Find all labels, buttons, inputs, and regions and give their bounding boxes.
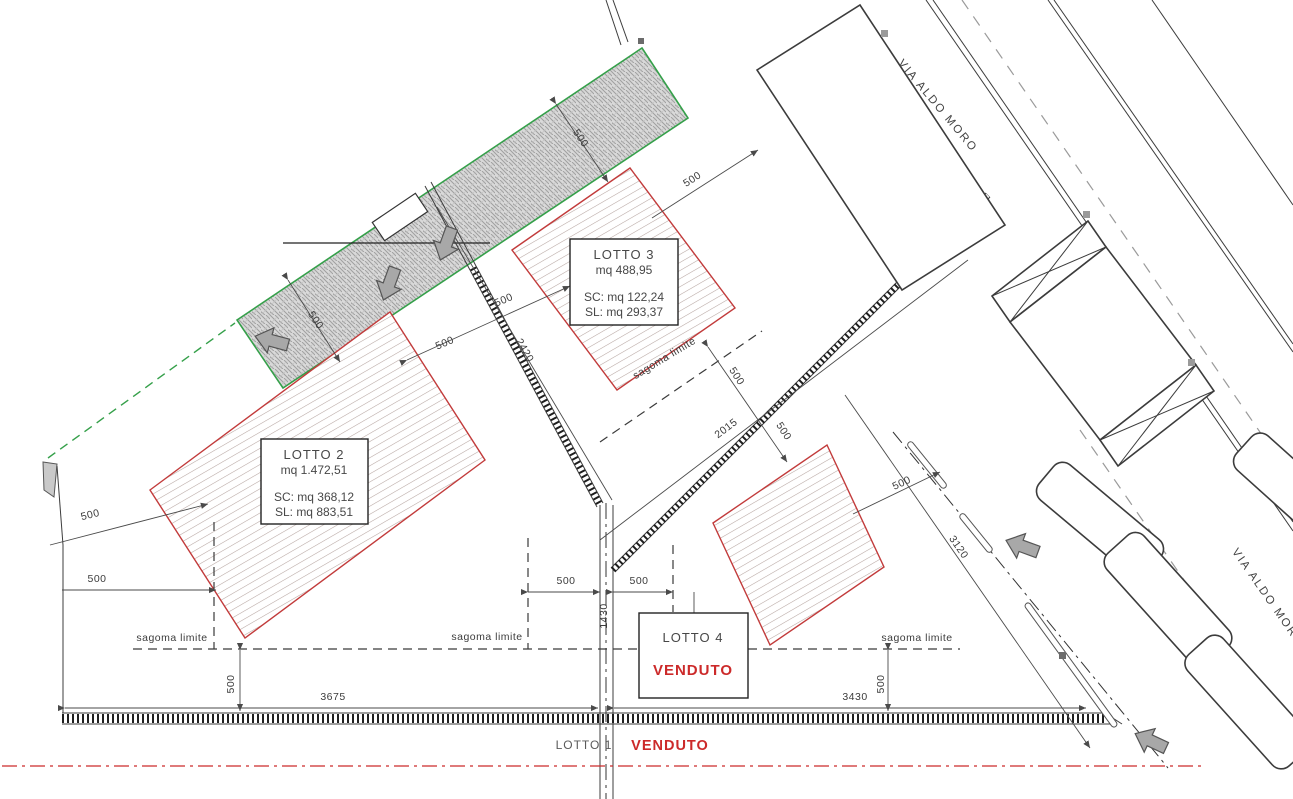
dim-label: 500 (225, 674, 237, 693)
lot4-status-sold: VENDUTO (653, 662, 733, 679)
street-name-secondary: VIA ALDO MOR (1229, 546, 1293, 640)
lot3-title: LOTTO 3 (594, 247, 655, 262)
lane-centerline (893, 432, 1168, 768)
dim-label: 500 (80, 507, 101, 523)
road-marking-bar (906, 441, 947, 490)
dim-label: 500 (875, 674, 887, 693)
label-box-lotto3: LOTTO 3 mq 488,95 SC: mq 122,24 SL: mq 2… (570, 239, 678, 325)
sagoma-limite-label: sagoma limite (136, 632, 207, 644)
dim-label: 500 (434, 334, 456, 352)
dim-label: 500 (726, 365, 746, 387)
lot3-area-label: mq 488,95 (596, 263, 653, 277)
dim-label: 500 (629, 575, 648, 587)
survey-point (1059, 652, 1066, 659)
dim-label: 500 (556, 575, 575, 587)
survey-point (881, 30, 888, 37)
lot4-title: LOTTO 4 (663, 630, 724, 645)
sagoma-limite-label: sagoma limite (451, 631, 522, 643)
lot2-sl-label: SL: mq 883,51 (275, 505, 353, 519)
road-marking-bar (1024, 602, 1118, 728)
direction-arrow-icon (1002, 528, 1043, 564)
boundary-triangle (43, 462, 57, 497)
via-aldo-moro (757, 0, 1293, 774)
dim-label: 500 (87, 573, 106, 585)
survey-point (638, 38, 644, 44)
direction-arrow-icon (1130, 722, 1172, 760)
survey-point (1083, 211, 1090, 218)
dim-label: 2015 (712, 416, 739, 441)
north-access-line (613, 0, 628, 42)
green-dashed-boundary (48, 323, 235, 458)
lots-hatched (150, 168, 884, 645)
survey-point (1188, 359, 1195, 366)
fence-line (1152, 0, 1293, 205)
lot1-labels: LOTTO 1 VENDUTO (556, 738, 709, 754)
label-box-lotto2: LOTTO 2 mq 1.472,51 SC: mq 368,12 SL: mq… (261, 439, 368, 524)
dim-label: 1430 (598, 603, 610, 628)
label-box-lotto4: LOTTO 4 VENDUTO (639, 613, 748, 698)
dim-label: 3120 (946, 533, 970, 561)
lot1-status-sold: VENDUTO (631, 738, 709, 754)
dim-label: 3430 (842, 691, 867, 703)
lot3-sl-label: SL: mq 293,37 (585, 305, 663, 319)
lot1-title: LOTTO 1 (556, 738, 613, 752)
dim-label: 500 (493, 291, 515, 309)
dim-label: 3675 (320, 691, 345, 703)
west-boundary-line (57, 466, 63, 545)
dim-label: 500 (891, 474, 913, 493)
dim-label: 2420 (513, 337, 536, 365)
parking-block (1229, 428, 1293, 556)
lot3-sc-label: SC: mq 122,24 (584, 290, 664, 304)
lot2-area-label: mq 1.472,51 (281, 463, 348, 477)
dim-label: 500 (773, 420, 793, 442)
sagoma-limite-label: sagoma limite (881, 632, 952, 644)
parking-block (1180, 630, 1293, 774)
site-plan-drawing: LOTTO 2 mq 1.472,51 SC: mq 368,12 SL: mq… (0, 0, 1293, 799)
lot2-title: LOTTO 2 (284, 447, 345, 462)
site-plan-canvas: LOTTO 2 mq 1.472,51 SC: mq 368,12 SL: mq… (0, 0, 1293, 799)
lot2-sc-label: SC: mq 368,12 (274, 490, 354, 504)
north-access-line (606, 0, 621, 45)
